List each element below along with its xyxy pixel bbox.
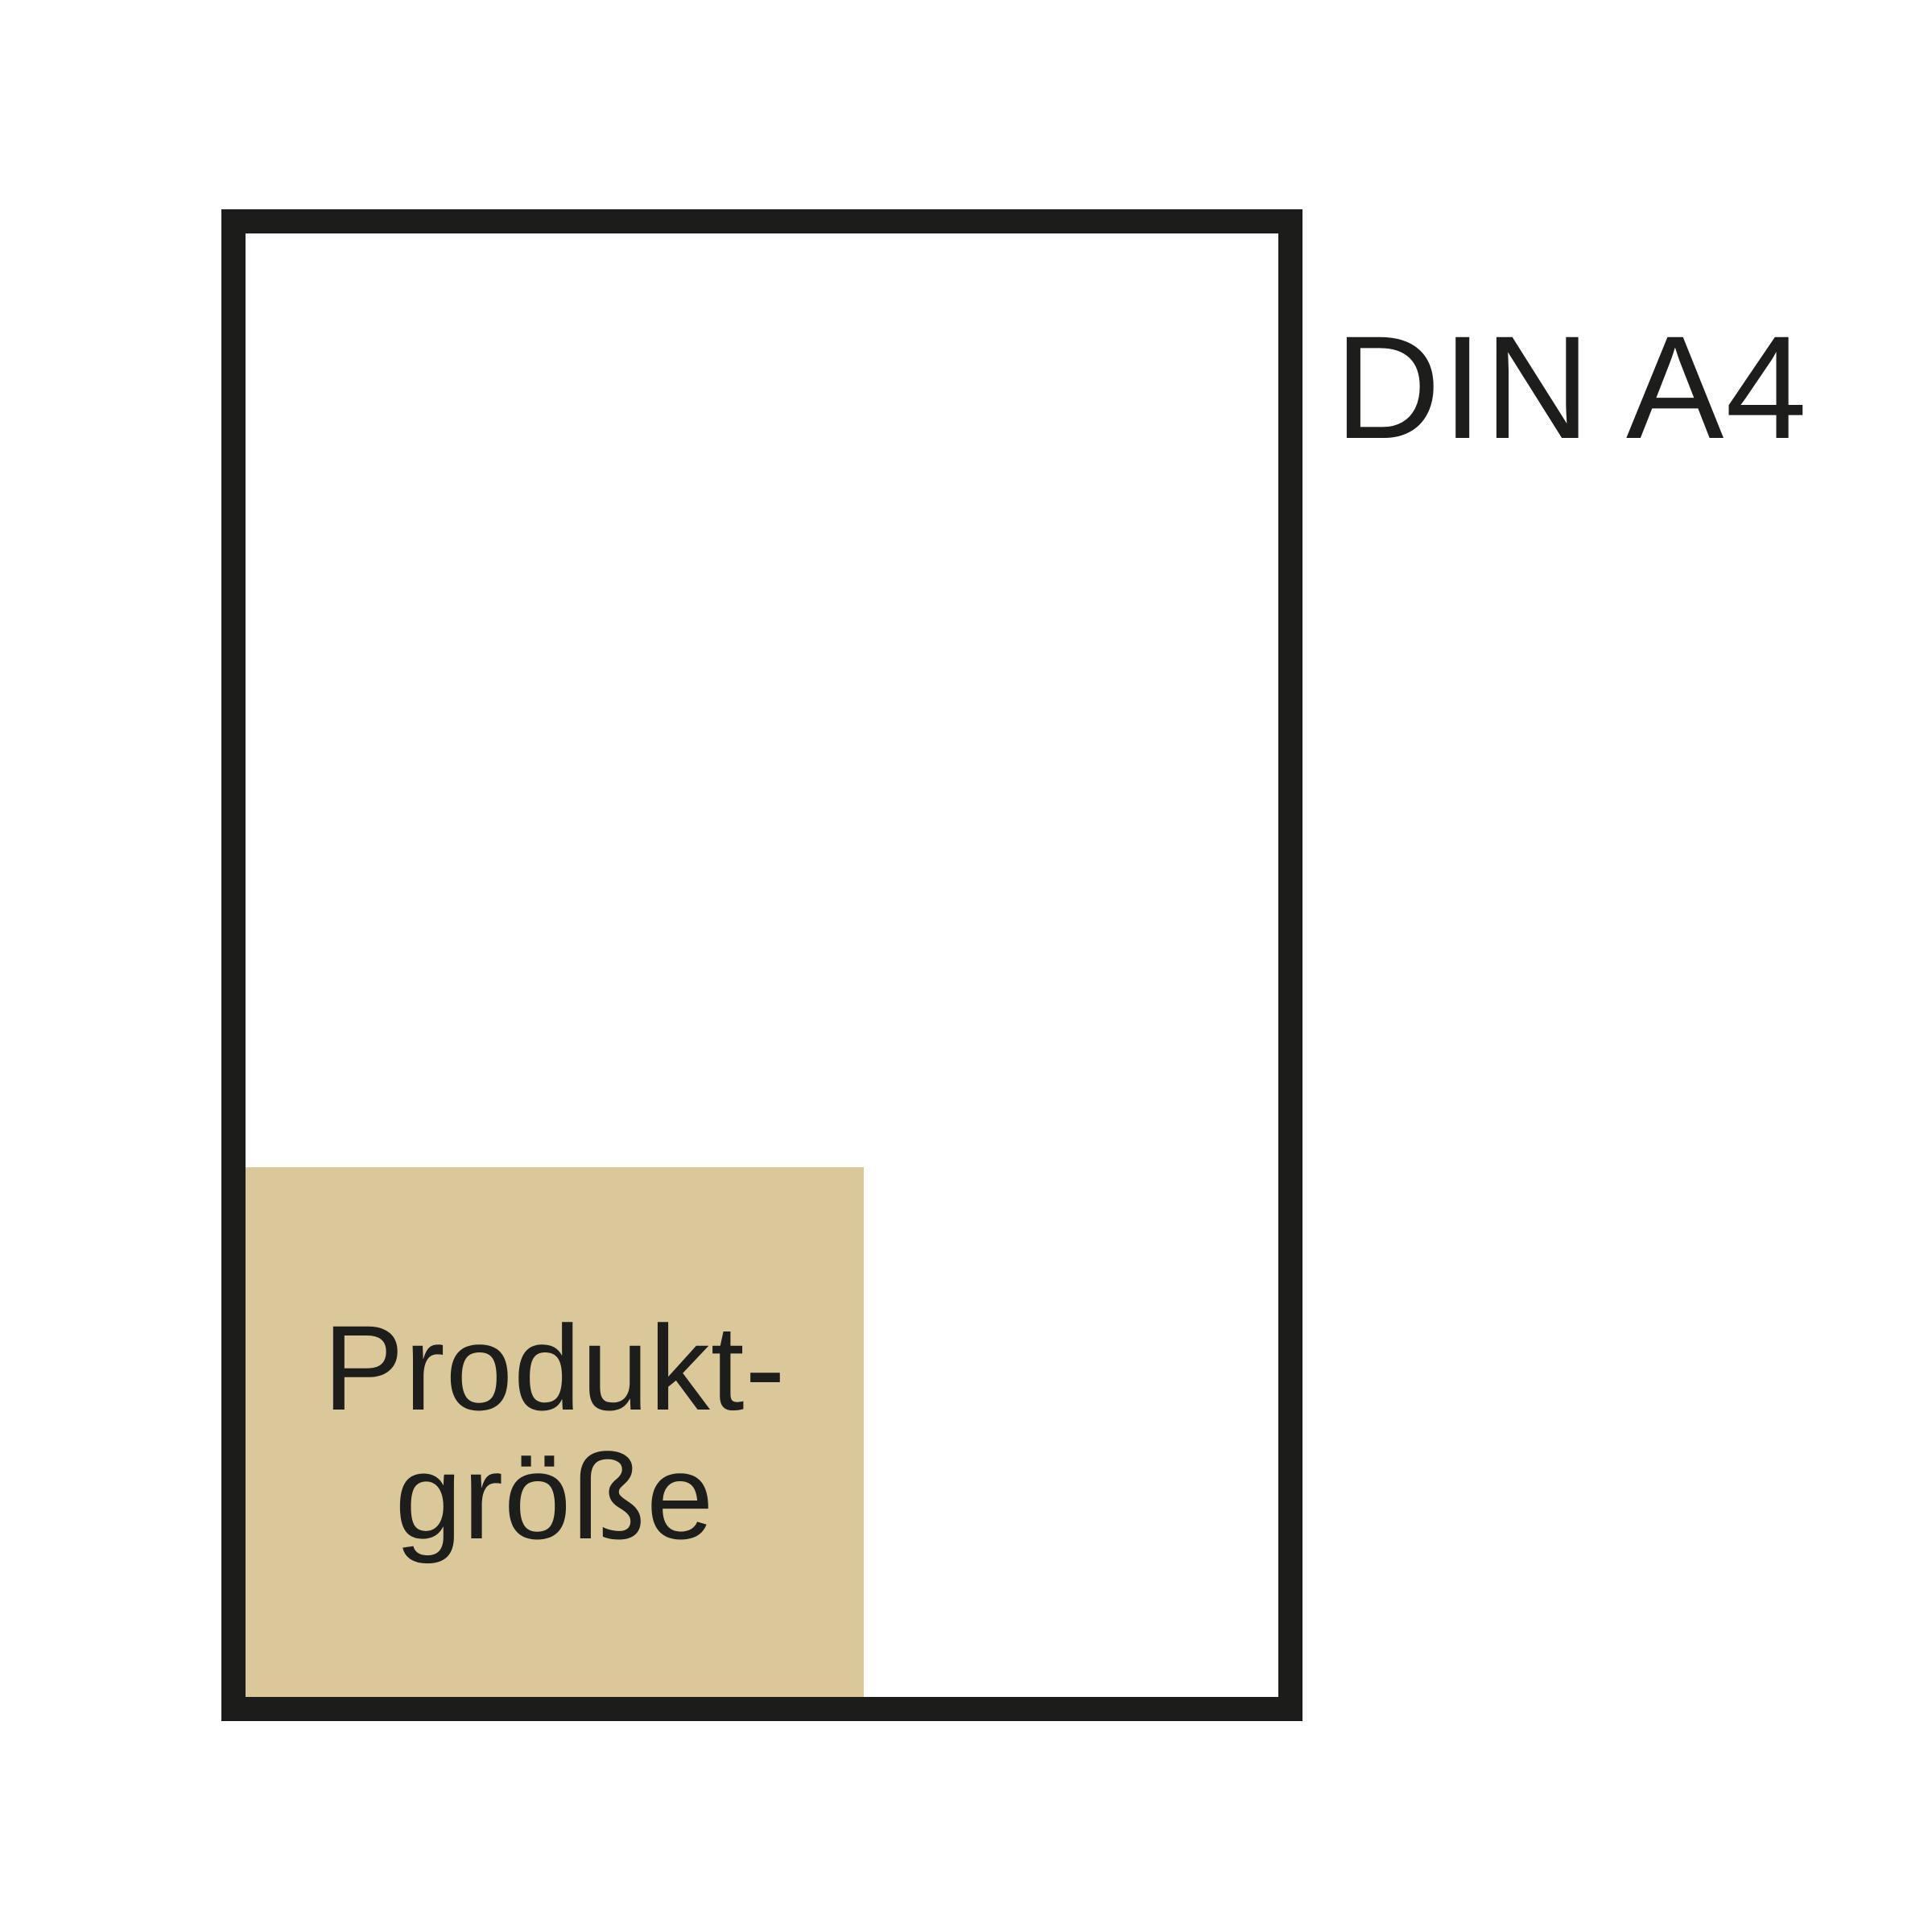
product-size-label-line2: größe (324, 1432, 786, 1561)
product-size-label: Produkt- größe (324, 1303, 786, 1561)
product-size-label-line1: Produkt- (324, 1303, 786, 1432)
product-size-box: Produkt- größe (246, 1167, 864, 1697)
din-a4-page-outline: Produkt- größe (221, 209, 1302, 1721)
diagram-canvas: Produkt- größe DIN A4 (0, 0, 1932, 1932)
din-a4-label: DIN A4 (1335, 314, 1809, 460)
